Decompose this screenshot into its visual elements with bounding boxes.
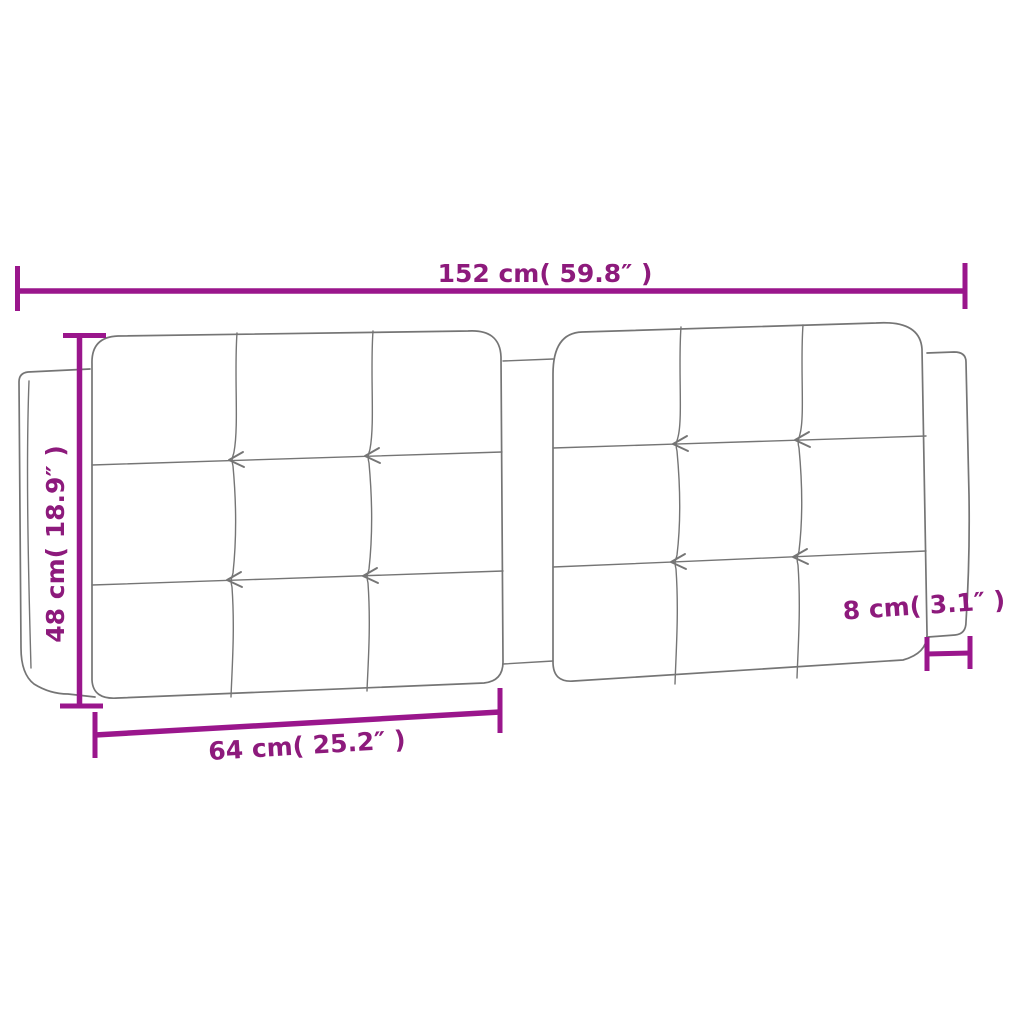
- left-side-panel-inner-edge: [28, 381, 31, 668]
- headboard-drawing: [19, 323, 969, 698]
- dimension-label-height: 48 cm( 18.9″ ): [41, 445, 70, 642]
- tuft-crease: [229, 452, 244, 467]
- dimension-panel-width: 64 cm( 25.2″ ): [95, 688, 500, 766]
- left-cushion-tuft-seams: [92, 331, 503, 697]
- dimension-label-panel-width: 64 cm( 25.2″ ): [208, 725, 407, 766]
- center-connector-strip: [503, 359, 553, 664]
- dimension-height: 48 cm( 18.9″ ): [41, 334, 106, 707]
- dimension-line: [926, 653, 971, 654]
- tuft-seam-vertical: [367, 331, 373, 691]
- left-cushion-panel: [92, 331, 503, 698]
- right-cushion-outline: [553, 323, 927, 681]
- right-cushion-tuft-creases: [671, 432, 810, 569]
- diagram-page: 152 cm( 59.8″ ) 48 cm( 18.9″ ) 64 cm( 25…: [0, 0, 1024, 1024]
- dimension-label-total-width: 152 cm( 59.8″ ): [438, 259, 653, 288]
- connector-top-edge: [503, 359, 553, 361]
- dimension-label-side-depth: 8 cm( 3.1″ ): [842, 585, 1006, 625]
- tuft-seam-horizontal: [92, 452, 502, 465]
- tuft-seam-vertical: [797, 325, 803, 678]
- dimension-total-width: 152 cm( 59.8″ ): [17, 259, 966, 311]
- left-cushion-tuft-creases: [227, 448, 380, 587]
- tuft-seam-horizontal: [92, 571, 503, 585]
- left-cushion-outline: [92, 331, 503, 698]
- right-cushion-tuft-seams: [553, 325, 926, 684]
- headboard-dimension-diagram: 152 cm( 59.8″ ) 48 cm( 18.9″ ) 64 cm( 25…: [0, 0, 1024, 1024]
- tuft-seam-horizontal: [553, 436, 926, 448]
- tuft-seam-vertical: [231, 333, 237, 697]
- dimension-side-depth: 8 cm( 3.1″ ): [842, 585, 1006, 671]
- right-cushion-panel: [553, 323, 927, 684]
- connector-bottom-edge: [503, 661, 553, 664]
- tuft-seam-horizontal: [553, 551, 926, 567]
- tuft-seam-vertical: [675, 327, 681, 684]
